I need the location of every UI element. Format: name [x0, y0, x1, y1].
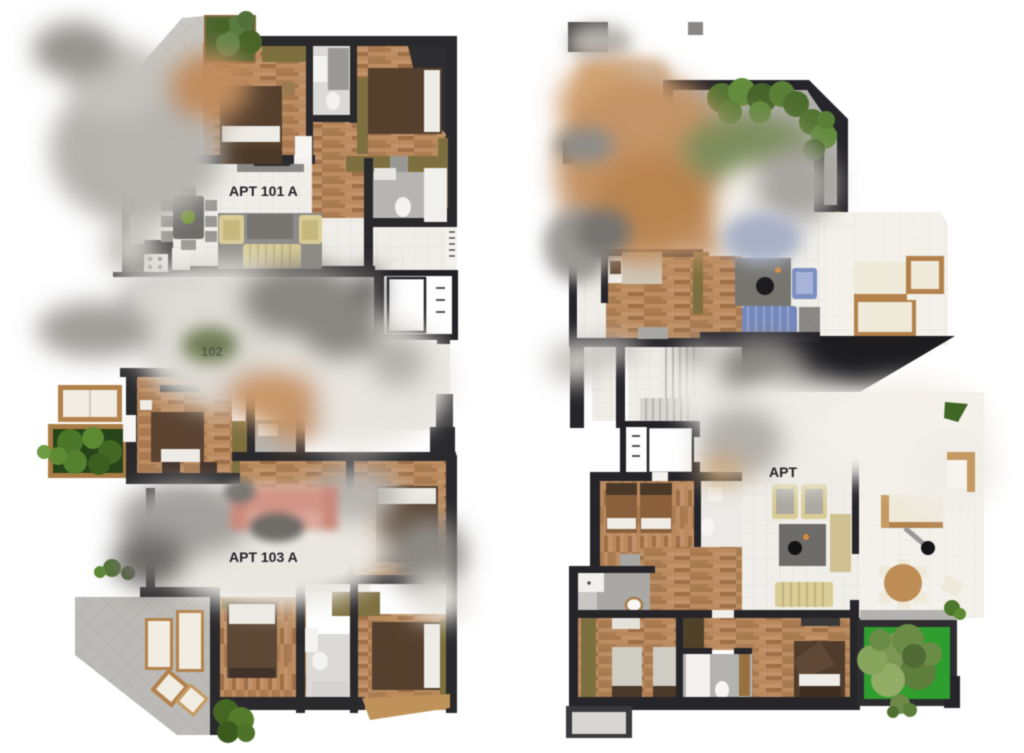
svg-text:APT: APT: [769, 464, 797, 480]
svg-text:APT 101 A: APT 101 A: [229, 183, 298, 199]
svg-text:102: 102: [201, 344, 223, 359]
svg-text:APT 103 A: APT 103 A: [229, 549, 298, 565]
